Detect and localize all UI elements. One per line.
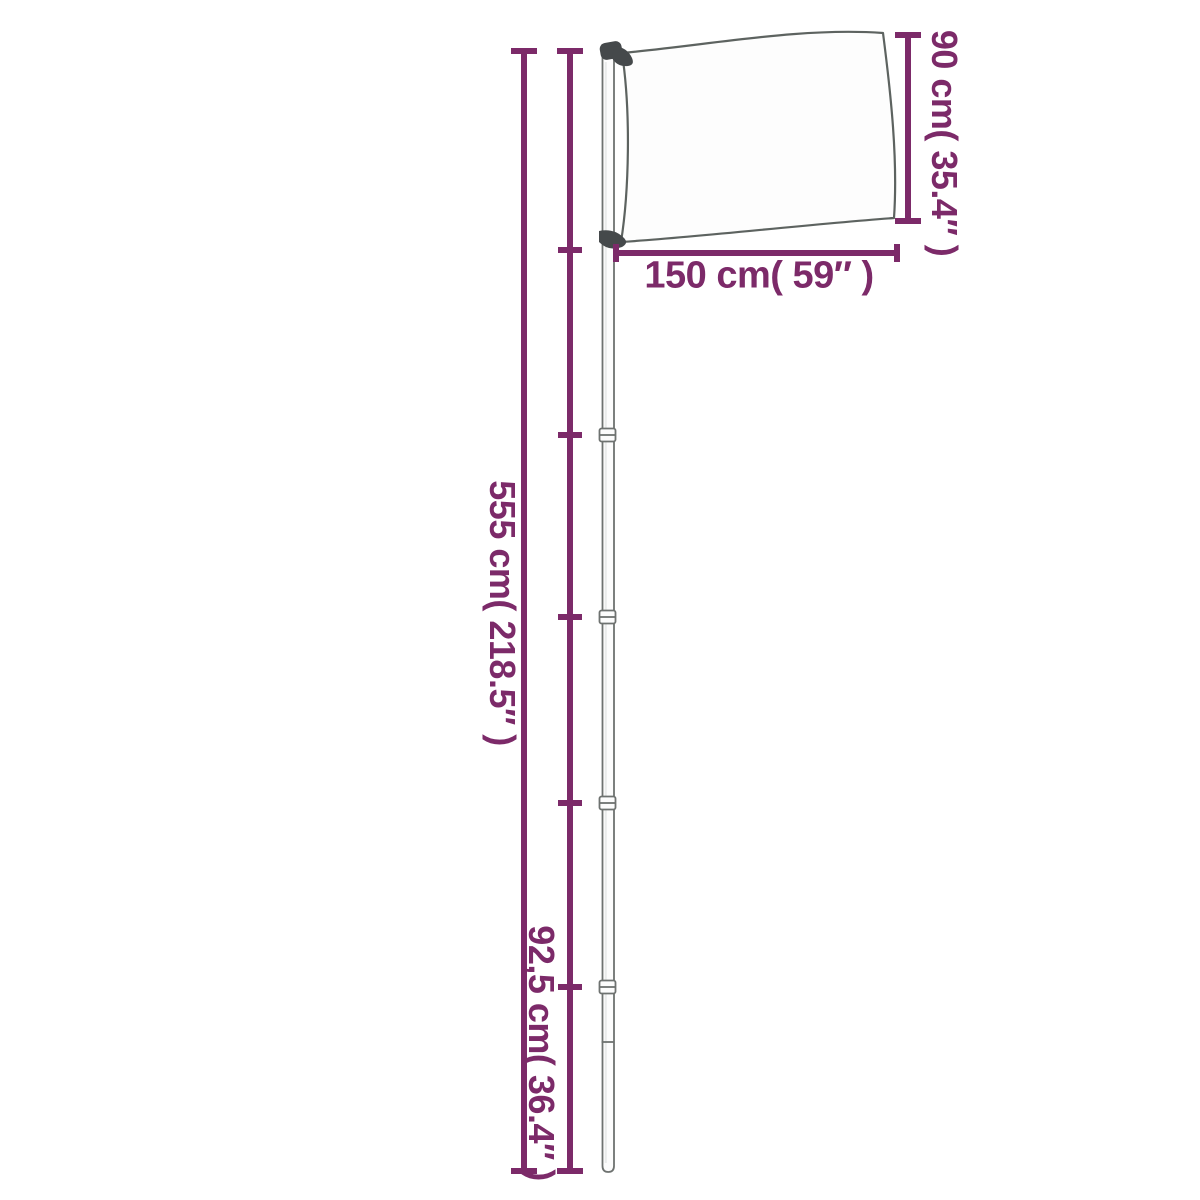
pole-joint-1 [600, 429, 616, 442]
flagpole-artwork [0, 0, 1200, 1200]
flag-cloth [621, 32, 895, 242]
flag-width-label: 150 cm( 59″ ) [644, 255, 873, 298]
pole-joint-4 [600, 981, 616, 994]
product-dimension-diagram: 555 cm( 218.5″ ) 92,5 cm( 36.4″ ) 150 cm… [0, 0, 1200, 1200]
flag-height-label: 90 cm( 35.4″ ) [923, 30, 965, 256]
pole-body [603, 45, 615, 1172]
bottom-segment-label: 92,5 cm( 36.4″ ) [520, 925, 562, 1180]
flag-clip-top [612, 46, 633, 66]
pole-height-label: 555 cm( 218.5″ ) [481, 480, 523, 745]
flag [599, 32, 895, 249]
pole-joint-2 [600, 611, 616, 624]
pole-joint-3 [600, 797, 616, 810]
dim-flag-height-line [895, 35, 921, 221]
pole [599, 40, 624, 1172]
